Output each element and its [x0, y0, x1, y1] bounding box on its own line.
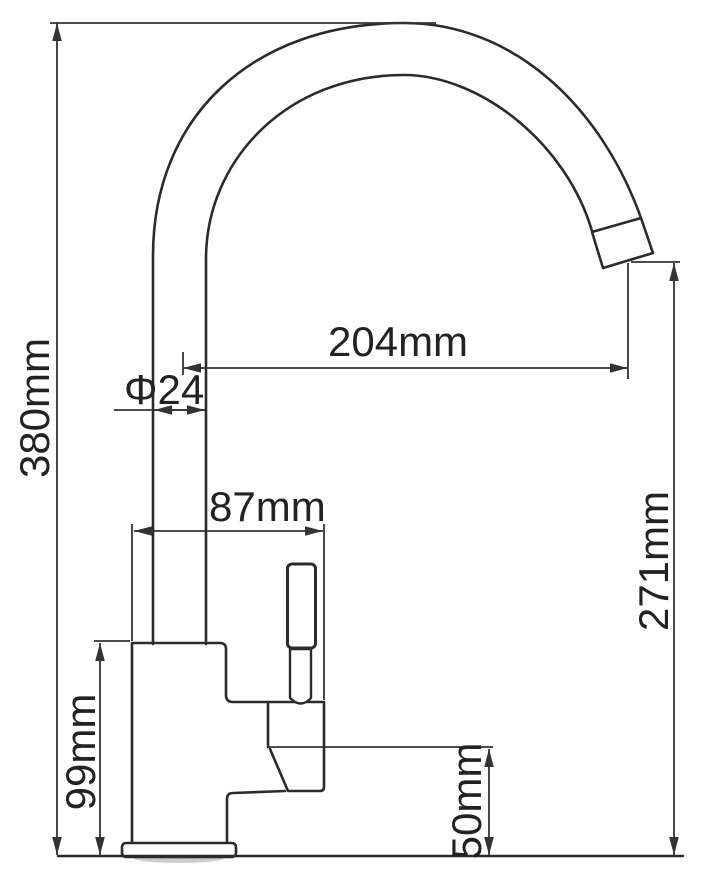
dim-204-label: 204mm — [328, 318, 468, 365]
dim-body-height: 99mm — [57, 641, 130, 855]
faucet-dimension-drawing: 380mm 204mm Φ24 87mm 271mm — [0, 0, 714, 880]
spout-nozzle — [592, 218, 653, 268]
dim-87-label: 87mm — [209, 483, 326, 530]
dim-outlet-port-height: 50mm — [268, 743, 493, 860]
dim-271-label: 271mm — [630, 491, 677, 631]
technical-drawing-canvas: 380mm 204mm Φ24 87mm 271mm — [0, 0, 714, 880]
dim-99-label: 99mm — [57, 694, 104, 811]
faucet-outline — [58, 23, 683, 863]
dim-pipe-diameter: Φ24 — [114, 366, 205, 413]
handle-grip — [288, 564, 316, 648]
dim-50-label: 50mm — [443, 743, 490, 860]
dim-phi24-label: Φ24 — [124, 366, 204, 413]
handle-stem — [290, 649, 311, 704]
dim-380-label: 380mm — [11, 338, 58, 478]
dim-spout-reach: 204mm — [183, 263, 628, 379]
dim-outlet-height: 271mm — [630, 262, 680, 855]
body-lower-step — [227, 791, 285, 845]
